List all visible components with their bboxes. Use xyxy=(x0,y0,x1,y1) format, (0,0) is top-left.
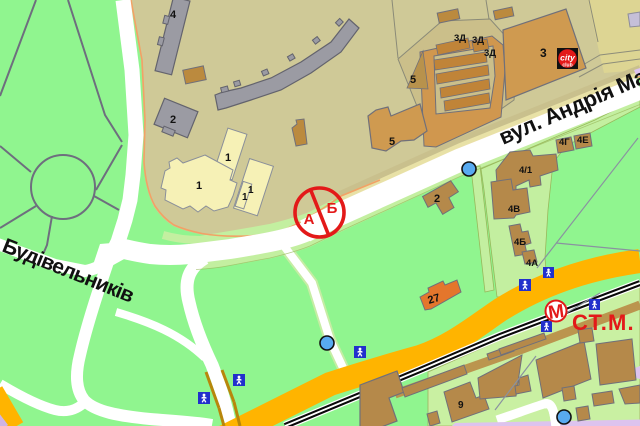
svg-text:5: 5 xyxy=(410,74,416,86)
svg-text:1: 1 xyxy=(248,185,254,196)
svg-text:2: 2 xyxy=(170,114,176,126)
svg-text:4: 4 xyxy=(170,9,177,21)
svg-text:4Г: 4Г xyxy=(559,137,570,148)
svg-text:4А: 4А xyxy=(526,258,538,269)
svg-text:Б: Б xyxy=(327,200,338,217)
svg-text:М: М xyxy=(547,301,566,324)
svg-text:5: 5 xyxy=(389,136,395,148)
svg-text:9: 9 xyxy=(458,400,464,411)
svg-text:3Д: 3Д xyxy=(484,48,496,59)
svg-text:2: 2 xyxy=(434,193,440,205)
svg-text:club: club xyxy=(562,63,572,69)
svg-text:4/1: 4/1 xyxy=(519,165,533,176)
svg-text:1: 1 xyxy=(242,192,248,203)
svg-text:СТ.М.: СТ.М. xyxy=(572,310,635,335)
svg-text:4Е: 4Е xyxy=(577,135,589,146)
svg-text:4В: 4В xyxy=(508,204,520,215)
svg-text:1: 1 xyxy=(225,152,231,164)
svg-text:1: 1 xyxy=(196,180,202,192)
svg-text:3Д: 3Д xyxy=(472,35,484,46)
svg-text:А: А xyxy=(304,211,315,228)
svg-text:city: city xyxy=(560,53,576,63)
svg-text:4Б: 4Б xyxy=(514,237,526,248)
svg-text:3Д: 3Д xyxy=(454,33,466,44)
svg-text:3: 3 xyxy=(540,46,547,60)
